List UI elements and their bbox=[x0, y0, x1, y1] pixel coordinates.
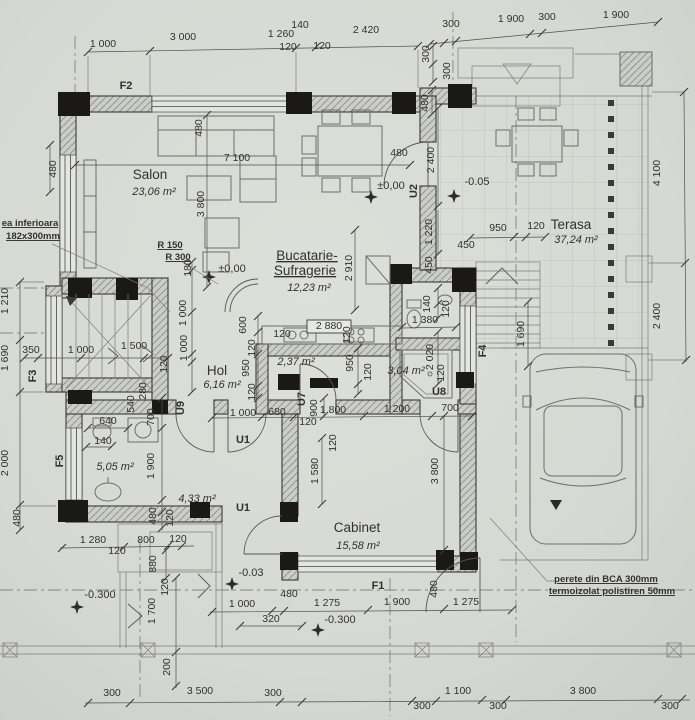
room-area-terasa: 37,24 m² bbox=[554, 234, 598, 246]
dim-label: 1 210 bbox=[0, 288, 11, 314]
dim-label: 300 bbox=[420, 45, 432, 63]
dim-label: 480 bbox=[11, 509, 23, 527]
dim-label: 3 800 bbox=[195, 191, 207, 217]
dim-label: 950 bbox=[240, 359, 252, 377]
dim-label: 1 800 bbox=[320, 404, 346, 416]
dim-label: 300 bbox=[442, 18, 460, 30]
opening-tag: U1 bbox=[236, 502, 250, 514]
dim-label: 1 690 bbox=[515, 321, 527, 347]
opening-tag: F3 bbox=[27, 370, 39, 383]
dim-label: 3 000 bbox=[170, 31, 196, 43]
dim-label: 120 bbox=[527, 220, 545, 232]
dim-label: 1 690 bbox=[0, 345, 11, 371]
dim-label: 120 bbox=[327, 434, 339, 452]
stair-note-line2: 182x300mm bbox=[6, 231, 60, 242]
level-label: -0.03 bbox=[238, 567, 263, 579]
opening-tag: U8 bbox=[432, 386, 446, 398]
opening-tag: F1 bbox=[372, 580, 385, 592]
dim-label: 120 bbox=[273, 328, 291, 340]
dim-label: 680 bbox=[268, 406, 286, 418]
dim-label: 180 bbox=[182, 259, 194, 277]
dim-label: 2 880 bbox=[316, 320, 342, 332]
dim-label: 1 200 bbox=[384, 403, 410, 415]
opening-tag: U7 bbox=[296, 392, 308, 406]
room-area-hol: 6,16 m² bbox=[203, 379, 241, 391]
dim-label: 480 bbox=[147, 507, 159, 525]
dim-label: 2 400 bbox=[651, 303, 663, 329]
room-area-bucatarie: 12,23 m² bbox=[287, 282, 331, 294]
dim-label: 1 275 bbox=[453, 596, 479, 608]
opening-tag: U9 bbox=[175, 401, 187, 415]
dim-label: 880 bbox=[147, 555, 159, 573]
room-area-3-04: 3,04 m² bbox=[387, 365, 425, 377]
dim-label: 600 bbox=[237, 316, 249, 334]
dim-label: 1 100 bbox=[445, 685, 471, 697]
room-area-salon: 23,06 m² bbox=[131, 186, 176, 198]
dim-label: 300 bbox=[538, 11, 556, 23]
dim-label: 140 bbox=[421, 295, 433, 313]
dim-label: 120 bbox=[341, 326, 353, 344]
dim-label: 1 580 bbox=[309, 458, 321, 484]
room-area-2-37: 2,37 m² bbox=[276, 356, 315, 368]
dim-label: 120 bbox=[362, 363, 374, 381]
dim-label: 120 bbox=[440, 300, 452, 318]
dim-label: 320 bbox=[262, 613, 280, 625]
dim-label: 300 bbox=[264, 687, 282, 699]
room-area-4-33: 4,33 m² bbox=[178, 493, 216, 505]
dim-label: 950 bbox=[489, 222, 507, 234]
dim-label: 700 bbox=[145, 408, 157, 426]
corner-hatch-block bbox=[620, 52, 652, 86]
room-label-cabinet: Cabinet bbox=[334, 520, 381, 535]
room-label-bucatarie-1: Bucatarie- bbox=[276, 248, 338, 263]
dim-label: 1 220 bbox=[423, 219, 435, 245]
dim-label: 120 bbox=[299, 416, 317, 428]
dim-label: 480 bbox=[193, 119, 205, 137]
dim-label: 2 400 bbox=[425, 147, 437, 173]
opening-tag: U1 bbox=[236, 434, 250, 446]
wall-note-line2: termoizolat polistiren 50mm bbox=[549, 586, 675, 597]
dim-label: 120 bbox=[169, 533, 187, 545]
opening-tag: F5 bbox=[54, 455, 66, 468]
level-label: ±0,00 bbox=[377, 180, 404, 192]
opening-tag: F4 bbox=[477, 344, 489, 358]
dim-label: 120 bbox=[164, 509, 176, 527]
dim-label: 480 bbox=[419, 94, 431, 112]
floor-plan-drawing: Salon 23,06 m² Bucatarie- Sufragerie 12,… bbox=[0, 0, 695, 720]
dim-label: 2 000 bbox=[0, 450, 11, 476]
dim-label: 120 bbox=[279, 41, 297, 53]
room-label-bucatarie-2: Sufragerie bbox=[274, 263, 336, 278]
dim-label: 300 bbox=[413, 700, 431, 712]
room-area-5-05: 5,05 m² bbox=[96, 461, 134, 473]
room-label-hol: Hol bbox=[207, 363, 227, 378]
dim-label: 120 bbox=[108, 545, 126, 557]
dim-label: 1 500 bbox=[121, 340, 147, 352]
level-label: -0.300 bbox=[324, 614, 355, 626]
dim-label: 1 275 bbox=[314, 597, 340, 609]
room-label-salon: Salon bbox=[133, 167, 168, 182]
dim-label: 120 bbox=[158, 355, 170, 373]
dim-label: 480 bbox=[428, 580, 440, 598]
dim-label: 1 000 bbox=[178, 335, 190, 361]
opening-tag: F2 bbox=[120, 80, 133, 92]
level-label: -0.300 bbox=[84, 589, 115, 601]
dim-label: 480 bbox=[280, 588, 298, 600]
dim-label: 1 900 bbox=[498, 13, 524, 25]
room-label-terasa: Terasa bbox=[551, 217, 592, 232]
dim-label: 2 420 bbox=[353, 24, 379, 36]
dim-label: 7 100 bbox=[224, 152, 250, 164]
dim-label: 300 bbox=[489, 700, 507, 712]
dim-label: 900 bbox=[308, 399, 320, 417]
dim-label: 1 280 bbox=[80, 534, 106, 546]
dim-label: 1 000 bbox=[90, 38, 116, 50]
wall-note-line1: perete din BCA 300mm bbox=[554, 574, 658, 585]
dim-label: 200 bbox=[161, 658, 173, 676]
dim-label: 1 000 bbox=[230, 407, 256, 419]
dim-label: 4 100 bbox=[651, 160, 663, 186]
dim-label: 1 000 bbox=[68, 344, 94, 356]
dim-label: 300 bbox=[661, 700, 679, 712]
dim-label: 800 bbox=[137, 534, 155, 546]
dim-label: 3 500 bbox=[187, 685, 213, 697]
dim-label: 640 bbox=[99, 415, 117, 427]
dim-label: 1 380 bbox=[412, 314, 438, 326]
dim-label: 480 bbox=[47, 160, 59, 178]
dim-label: 450 bbox=[423, 256, 435, 274]
dim-label: 120 bbox=[159, 578, 171, 596]
dim-label: 120 bbox=[435, 364, 447, 382]
dim-label: 950 bbox=[344, 354, 356, 372]
dim-label: 120 bbox=[246, 383, 258, 401]
dim-label: 300 bbox=[103, 687, 121, 699]
dim-label: 480 bbox=[390, 147, 408, 159]
room-area-cabinet: 15,58 m² bbox=[336, 540, 380, 552]
level-label: -0.05 bbox=[464, 176, 489, 188]
dim-label: 120 bbox=[246, 339, 258, 357]
stair-note-line1: ea inferioara bbox=[2, 218, 59, 229]
dim-label: 3 800 bbox=[429, 458, 441, 484]
dim-label: 350 bbox=[22, 344, 40, 356]
dim-label: 540 bbox=[125, 395, 137, 413]
dim-label: 1 000 bbox=[177, 300, 189, 326]
dim-label: 300 bbox=[441, 62, 453, 80]
dim-label: 450 bbox=[457, 239, 475, 251]
dim-label: 1 700 bbox=[146, 598, 158, 624]
dim-label: 1 900 bbox=[603, 9, 629, 21]
dim-label: 1 000 bbox=[229, 598, 255, 610]
dim-label: 140 bbox=[94, 435, 112, 447]
dim-label: 2 910 bbox=[343, 255, 355, 281]
dim-label: 1 900 bbox=[384, 596, 410, 608]
dim-label: 700 bbox=[441, 402, 459, 414]
opening-tag: U2 bbox=[408, 184, 420, 198]
level-label: ±0,00 bbox=[218, 263, 245, 275]
dim-label: 3 800 bbox=[570, 685, 596, 697]
dim-label: 140 bbox=[291, 19, 309, 31]
radius-note-r150: R 150 bbox=[157, 240, 182, 251]
dim-label: 280 bbox=[137, 382, 149, 400]
scanned-floor-plan-page: Salon 23,06 m² Bucatarie- Sufragerie 12,… bbox=[0, 0, 695, 720]
dim-label: 120 bbox=[313, 40, 331, 52]
dim-label: 1 900 bbox=[145, 453, 157, 479]
